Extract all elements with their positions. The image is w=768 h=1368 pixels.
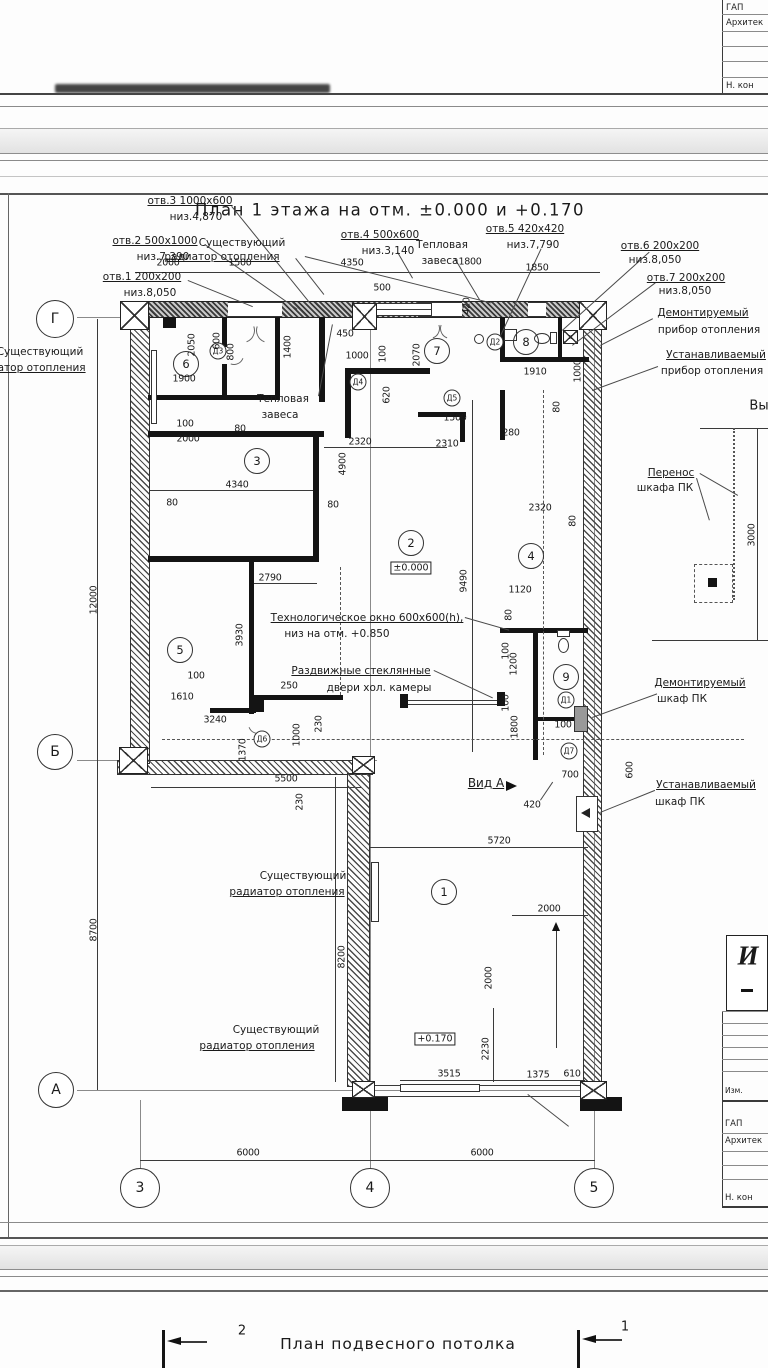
section-arrow-icon bbox=[167, 1337, 181, 1345]
door-swing-arc bbox=[252, 314, 285, 347]
wall-axis-a-line bbox=[370, 1096, 600, 1097]
note-pk-demolished: Демонтируемый bbox=[654, 677, 745, 689]
dimension-label: 1000 bbox=[346, 351, 369, 362]
opening-callout-sub: низ.8,050 bbox=[659, 285, 712, 297]
column-marker bbox=[352, 1081, 375, 1098]
dimension-label: 1910 bbox=[524, 367, 547, 378]
section-arrow-icon bbox=[582, 1335, 596, 1343]
window-mid-line bbox=[370, 309, 432, 310]
radiator bbox=[151, 350, 157, 424]
opening-callout-sub: низ.8,050 bbox=[629, 254, 682, 266]
note-existing-radiator: Существующий bbox=[0, 346, 83, 358]
dim-line bbox=[512, 915, 588, 916]
dimension-label: 100 bbox=[378, 345, 389, 362]
dimension-label: 100 bbox=[501, 694, 512, 711]
view-direction-icon bbox=[506, 781, 517, 791]
partial-view-title: Вы bbox=[749, 399, 768, 414]
glass-door-line bbox=[405, 704, 500, 705]
dimension-label: 2050 bbox=[187, 334, 198, 357]
dimension-label: 5720 bbox=[488, 836, 511, 847]
partition-wall bbox=[313, 432, 319, 562]
grid-col-3: 3 bbox=[120, 1168, 160, 1208]
dimension-label: 9490 bbox=[459, 570, 470, 593]
dimension-label: 230 bbox=[314, 715, 325, 732]
partition-wall bbox=[148, 556, 319, 562]
grid-row-g: Г bbox=[36, 300, 74, 338]
dim-line bbox=[140, 1160, 595, 1161]
titleblock-row-line bbox=[722, 61, 768, 62]
titleblock-role-architect: Архитек bbox=[725, 1136, 767, 1146]
stamp-letter: И bbox=[737, 941, 758, 972]
titleblock-row-line bbox=[722, 1059, 768, 1060]
sheet-edge-line bbox=[0, 1222, 768, 1223]
door-swing-arc bbox=[226, 314, 259, 347]
note-existing-radiator: радиатор отопления bbox=[0, 362, 86, 374]
view-a-label: Вид А bbox=[468, 776, 504, 790]
leader-line bbox=[434, 670, 493, 698]
dimension-label: 2230 bbox=[481, 1038, 492, 1061]
opening-callout-sub: низ.4,870 bbox=[170, 211, 223, 223]
dim-line bbox=[97, 319, 98, 1090]
note-installed-heater: Устанавливаемый bbox=[666, 349, 766, 361]
dimension-label: 8200 bbox=[337, 946, 348, 969]
sheet-edge-line bbox=[0, 160, 768, 161]
dim-line bbox=[400, 1080, 585, 1081]
toilet-bowl bbox=[558, 638, 569, 653]
room-number-2: 2 bbox=[398, 530, 424, 556]
door-tag-d6: Д6 bbox=[254, 731, 271, 748]
titleblock-row-line bbox=[722, 1100, 768, 1102]
door-leaf bbox=[527, 1094, 569, 1127]
dimension-label: 1500 bbox=[229, 258, 252, 269]
porch-block bbox=[342, 1097, 388, 1111]
room-number-3: 3 bbox=[244, 448, 270, 474]
dimension-label: 80 bbox=[552, 401, 563, 413]
note-thermal-curtain: Тепловая bbox=[257, 393, 309, 405]
dimension-label: 6000 bbox=[237, 1148, 260, 1159]
stamp-mark bbox=[741, 989, 753, 992]
titleblock-row-line bbox=[722, 1047, 768, 1048]
room-number-7: 7 bbox=[424, 338, 450, 364]
dimension-label: 1500 bbox=[444, 413, 467, 424]
wall-opening bbox=[228, 302, 282, 317]
partial-view-line bbox=[652, 640, 768, 641]
note-existing-radiator: Существующий bbox=[233, 1024, 320, 1036]
note-pk-demolished: шкаф ПК bbox=[657, 693, 707, 705]
dimension-label: 2000 bbox=[484, 967, 495, 990]
dimension-label: 1375 bbox=[527, 1070, 550, 1081]
note-existing-radiator: радиатор отопления bbox=[164, 251, 279, 263]
titleblock-row-line bbox=[722, 1133, 768, 1134]
sheet-edge-line bbox=[0, 106, 768, 107]
room-number-5: 5 bbox=[167, 637, 193, 663]
dashed-line bbox=[162, 739, 744, 740]
dimension-label: 1610 bbox=[171, 692, 194, 703]
dimension-label: 2000 bbox=[157, 258, 180, 269]
exterior-wall-left bbox=[131, 317, 149, 763]
axis-line-a bbox=[77, 1090, 607, 1091]
pk-cabinet-relocated-core bbox=[708, 578, 717, 587]
partial-view-wall bbox=[733, 428, 735, 600]
leader-line bbox=[592, 693, 657, 718]
dimension-label: 1850 bbox=[526, 263, 549, 274]
sheet-stack-band bbox=[0, 1245, 768, 1270]
titleblock-row-line bbox=[722, 1165, 768, 1166]
drawing-sheet: ГАП Архитек Н. кон План 1 этажа на отм. … bbox=[0, 0, 768, 1368]
note-installed-heater: прибор отопления bbox=[661, 365, 763, 377]
dimension-label: 1200 bbox=[509, 653, 520, 676]
dimension-label: 2320 bbox=[349, 437, 372, 448]
dimension-label: 1000 bbox=[573, 360, 584, 383]
dim-line bbox=[335, 777, 336, 1082]
titleblock-row-line bbox=[722, 31, 768, 32]
column-marker bbox=[580, 1081, 607, 1100]
dashed-line bbox=[543, 390, 544, 755]
room-number-1: 1 bbox=[431, 879, 457, 905]
dimension-label: 1400 bbox=[283, 336, 294, 359]
opening-callout-sub: низ.3,140 bbox=[362, 245, 415, 257]
dimension-label: 3240 bbox=[204, 715, 227, 726]
radiator bbox=[400, 1084, 480, 1092]
level-mark-170: +0.170 bbox=[414, 1033, 455, 1046]
column-marker bbox=[352, 756, 375, 774]
note-existing-radiator: радиатор отопления bbox=[199, 1040, 314, 1052]
exterior-wall-right bbox=[584, 317, 601, 1085]
dimension-label: 4340 bbox=[226, 480, 249, 491]
partition-wall bbox=[253, 695, 343, 700]
dimension-label: 3000 bbox=[747, 524, 758, 547]
partition-wall bbox=[249, 562, 254, 714]
note-glass-doors: двери хол. камеры bbox=[327, 682, 432, 694]
drawing-title: План 1 этажа на отм. ±0.000 и +0.170 bbox=[195, 201, 585, 220]
dimension-label: 610 bbox=[563, 1069, 580, 1080]
titleblock-row-line bbox=[722, 1023, 768, 1024]
grid-row-a: А bbox=[38, 1072, 74, 1108]
dimension-label: 250 bbox=[280, 681, 297, 692]
dimension-label: 100 bbox=[176, 419, 193, 430]
note-demolished-heater: Демонтируемый bbox=[657, 307, 748, 319]
wall-niche bbox=[163, 317, 176, 328]
note-existing-radiator: радиатор отопления bbox=[229, 886, 344, 898]
section-mark-line bbox=[596, 1339, 622, 1341]
sheet-edge-line bbox=[0, 1276, 768, 1277]
dimension-label: 80 bbox=[166, 498, 178, 509]
partition-wall bbox=[558, 317, 562, 357]
grid-col-5: 5 bbox=[574, 1168, 614, 1208]
dimension-label: 700 bbox=[561, 770, 578, 781]
room-number-4: 4 bbox=[518, 543, 544, 569]
dimension-label: 80 bbox=[568, 515, 579, 527]
opening-callout-sub: низ.8,050 bbox=[124, 287, 177, 299]
section-mark-line bbox=[181, 1341, 207, 1343]
titleblock-row-line bbox=[722, 1151, 768, 1152]
dimension-label: 500 bbox=[373, 283, 390, 294]
dimension-label: 1800 bbox=[459, 257, 482, 268]
cabinet-arrow-icon bbox=[581, 808, 590, 818]
note-existing-radiator: Существующий bbox=[199, 237, 286, 249]
dimension-label: 80 bbox=[234, 424, 246, 435]
door-block bbox=[254, 700, 264, 712]
opening-callout-sub: низ.7,790 bbox=[507, 239, 560, 251]
dimension-label: 4350 bbox=[341, 258, 364, 269]
dimension-label: 6000 bbox=[471, 1148, 494, 1159]
dimension-label: 80 bbox=[327, 500, 339, 511]
titleblock-row-line bbox=[722, 77, 768, 78]
ceiling-plan-title: План подвесного потолка bbox=[280, 1335, 516, 1353]
dimension-label: 2790 bbox=[259, 573, 282, 584]
note-thermal-curtain: завеса bbox=[422, 255, 459, 267]
dim-line bbox=[370, 847, 588, 848]
note-demolished-heater: прибор отопления bbox=[658, 324, 760, 336]
dimension-label: 620 bbox=[382, 386, 393, 403]
wall-room1-left bbox=[348, 774, 369, 1086]
section-number: 2 bbox=[238, 1324, 246, 1339]
dimension-label: 1120 bbox=[509, 585, 532, 596]
titleblock-row-line bbox=[722, 1071, 768, 1072]
dimension-label: 1800 bbox=[510, 716, 521, 739]
titleblock-row-line bbox=[722, 14, 768, 15]
leader-line bbox=[540, 782, 553, 801]
note-thermal-curtain: Тепловая bbox=[416, 239, 468, 251]
note-pk-installed: шкаф ПК bbox=[655, 796, 705, 808]
dimension-label: 450 bbox=[336, 329, 353, 340]
toilet-tank bbox=[557, 630, 570, 637]
titleblock-border bbox=[722, 1011, 723, 1207]
titleblock-role-gap: ГАП bbox=[726, 3, 743, 13]
sheet-top-border bbox=[0, 193, 768, 195]
titleblock-row-line bbox=[722, 1179, 768, 1180]
wall-axis-b bbox=[118, 761, 372, 774]
level-mark-zero: ±0.000 bbox=[390, 562, 431, 575]
room-number-8: 8 bbox=[513, 329, 539, 355]
sheet-edge-line bbox=[0, 93, 768, 95]
note-thermal-curtain: завеса bbox=[262, 409, 299, 421]
cropped-text-artifact bbox=[55, 84, 330, 93]
sheet-edge-line bbox=[0, 176, 768, 177]
dimension-label: 420 bbox=[462, 297, 473, 314]
partition-wall bbox=[500, 628, 588, 633]
dimension-label: 3930 bbox=[235, 624, 246, 647]
dim-line bbox=[556, 925, 557, 1048]
leader-line bbox=[592, 366, 658, 391]
door-tag-d1: Д1 bbox=[558, 692, 575, 709]
door-tag-d2: Д2 bbox=[487, 334, 504, 351]
dimension-label: 4900 bbox=[338, 453, 349, 476]
titleblock-role-architect: Архитек bbox=[726, 18, 768, 28]
titleblock-row-line bbox=[722, 1011, 768, 1012]
note-tech-window: Технологическое окно 600х600(h), bbox=[271, 612, 464, 624]
dimension-label: 2000 bbox=[177, 434, 200, 445]
round-fixture bbox=[474, 334, 484, 344]
opening-callout: отв.5 420х420 bbox=[486, 223, 564, 235]
wall-opening bbox=[528, 302, 546, 317]
leader-line bbox=[600, 318, 653, 346]
leader-line bbox=[600, 790, 655, 813]
opening-callout: отв.2 500х1000 bbox=[112, 235, 197, 247]
dimension-label: 8700 bbox=[89, 919, 100, 942]
note-pk-relocate: шкафа ПК bbox=[637, 482, 693, 494]
titleblock-role-ncontrol: Н. кон bbox=[726, 81, 754, 91]
grid-row-b: Б bbox=[37, 734, 73, 770]
opening-callout: отв.4 500х600 bbox=[341, 229, 419, 241]
door-tag-d5: Д5 bbox=[444, 390, 461, 407]
dim-line bbox=[151, 787, 361, 788]
dimension-label: 600 bbox=[212, 332, 223, 349]
note-pk-relocate: Перенос bbox=[648, 467, 695, 479]
dimension-label: 2070 bbox=[412, 344, 423, 367]
sheet-edge-line bbox=[0, 1290, 768, 1292]
partition-wall bbox=[210, 708, 256, 713]
titleblock-role-gap: ГАП bbox=[725, 1119, 742, 1129]
axis-line-3 bbox=[140, 1100, 141, 1168]
opening-callout: отв.3 1000х600 bbox=[147, 195, 232, 207]
dimension-label: 1370 bbox=[238, 739, 249, 762]
dimension-label: 2000 bbox=[538, 904, 561, 915]
column-marker bbox=[119, 747, 148, 774]
note-existing-radiator: Существующий bbox=[260, 870, 347, 882]
arrow-up-icon bbox=[552, 922, 560, 931]
dim-line bbox=[324, 447, 447, 448]
dimension-label: 5500 bbox=[275, 774, 298, 785]
dimension-label: 600 bbox=[625, 761, 636, 778]
opening-callout: отв.6 200х200 bbox=[621, 240, 699, 252]
section-number: 1 bbox=[621, 1320, 629, 1335]
section-mark-bar bbox=[577, 1330, 580, 1368]
note-tech-window: низ на отм. +0.850 bbox=[284, 628, 389, 640]
titleblock-row-line bbox=[722, 1206, 768, 1208]
partition-wall bbox=[533, 633, 538, 760]
door-tag-d7: Д7 bbox=[561, 743, 578, 760]
opening-callout: отв.7 200х200 bbox=[647, 272, 725, 284]
sheet-stack-band bbox=[0, 128, 768, 154]
column-marker bbox=[352, 303, 377, 330]
dimension-label: 230 bbox=[295, 793, 306, 810]
glass-door-line bbox=[405, 700, 500, 701]
dimension-label: 2310 bbox=[436, 439, 459, 450]
section-mark-bar bbox=[162, 1330, 165, 1368]
titleblock-row-line bbox=[722, 46, 768, 47]
toilet-tank bbox=[550, 332, 557, 344]
dimension-label: 420 bbox=[523, 800, 540, 811]
sheet-bottom-border bbox=[0, 1237, 768, 1239]
titleblock-role-ncontrol: Н. кон bbox=[725, 1193, 753, 1203]
dimension-label: 280 bbox=[502, 428, 519, 439]
dimension-label: 80 bbox=[504, 609, 515, 621]
column-marker bbox=[120, 301, 149, 330]
opening-callout: отв.1 200х200 bbox=[103, 271, 181, 283]
leader-line bbox=[696, 478, 710, 520]
glass-door-block bbox=[400, 694, 408, 708]
room-number-9: 9 bbox=[553, 664, 579, 690]
door-tag-d4: Д4 bbox=[350, 374, 367, 391]
dimension-label: 100 bbox=[554, 720, 571, 731]
dimension-label: 2320 bbox=[529, 503, 552, 514]
radiator bbox=[371, 862, 379, 922]
dimension-label: 1000 bbox=[292, 724, 303, 747]
axis-line-g bbox=[77, 317, 602, 318]
dimension-label: 100 bbox=[187, 671, 204, 682]
grid-col-4: 4 bbox=[350, 1168, 390, 1208]
dim-line bbox=[493, 1008, 494, 1082]
dimension-label: 1900 bbox=[173, 374, 196, 385]
column-marker bbox=[579, 301, 607, 330]
titleblock-izm: Изм. bbox=[725, 1086, 743, 1095]
note-pk-installed: Устанавливаемый bbox=[656, 779, 756, 791]
pk-cabinet-demolished bbox=[574, 706, 588, 732]
note-glass-doors: Раздвижные стеклянные bbox=[291, 665, 430, 677]
dimension-label: 12000 bbox=[89, 586, 100, 615]
dimension-label: 3515 bbox=[438, 1069, 461, 1080]
titleblock-row-line bbox=[722, 1035, 768, 1036]
dimension-label: 800 bbox=[226, 343, 237, 360]
